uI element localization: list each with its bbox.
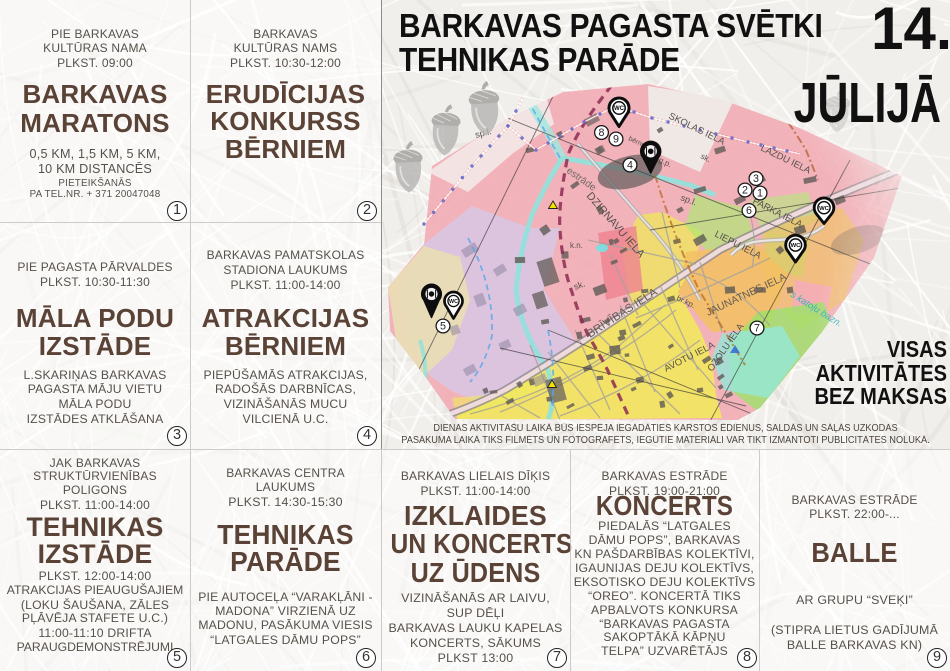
svg-text:WC: WC bbox=[819, 206, 830, 212]
svg-text:WC: WC bbox=[791, 243, 802, 249]
svg-text:WC: WC bbox=[614, 106, 625, 112]
svg-text:6: 6 bbox=[746, 205, 752, 217]
svg-text:5: 5 bbox=[440, 321, 446, 333]
svg-text:4: 4 bbox=[627, 160, 633, 172]
svg-text:2: 2 bbox=[742, 185, 748, 197]
svg-text:9: 9 bbox=[613, 134, 619, 146]
svg-text:8: 8 bbox=[599, 127, 605, 139]
svg-text:WC: WC bbox=[449, 299, 458, 305]
svg-text:7: 7 bbox=[754, 323, 760, 335]
svg-text:k.n.: k.n. bbox=[570, 241, 583, 250]
svg-text:3: 3 bbox=[753, 173, 759, 185]
svg-text:1: 1 bbox=[757, 188, 763, 200]
